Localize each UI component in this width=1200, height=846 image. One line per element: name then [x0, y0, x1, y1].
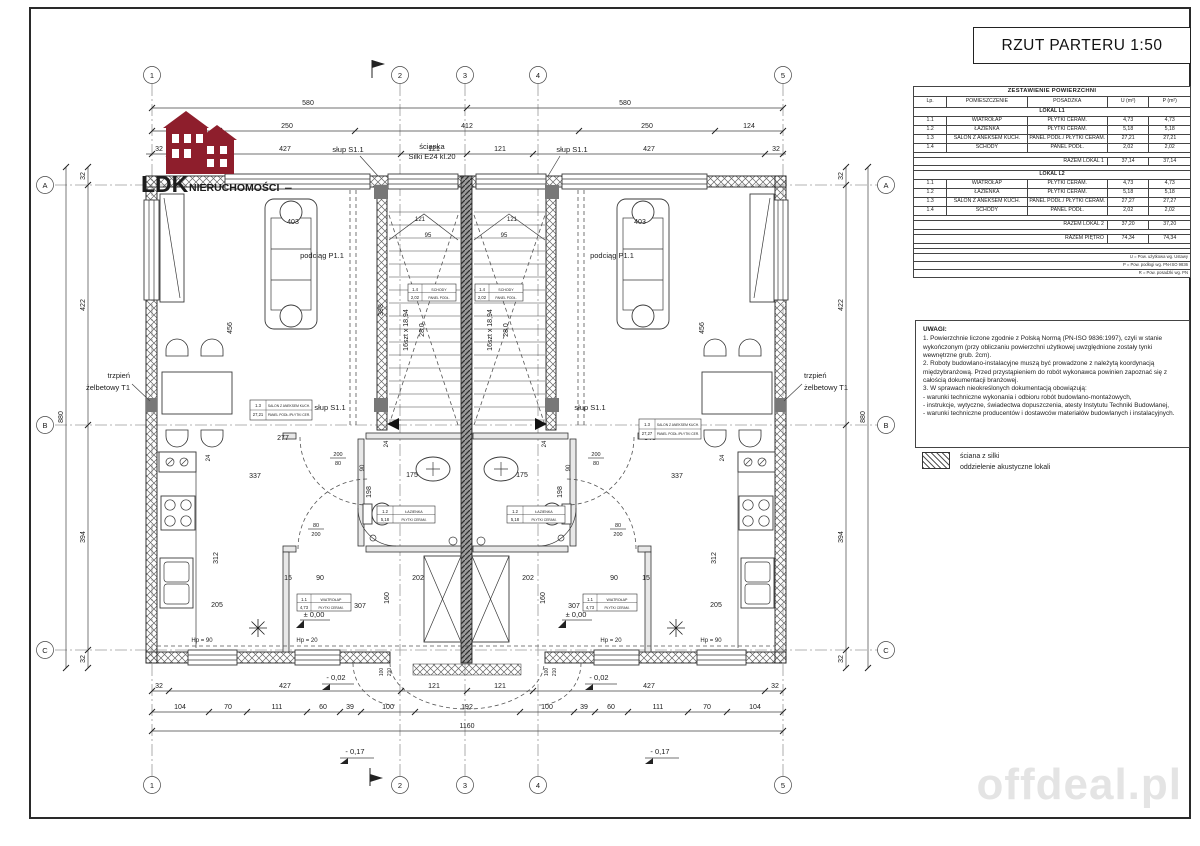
total-value: 37,14: [1107, 157, 1149, 166]
title-block: RZUT PARTERU 1:50: [973, 27, 1191, 64]
dimensions-right: 32 422 394 32 880: [838, 164, 871, 671]
dim: 200: [333, 452, 342, 458]
room-number: 1.3: [255, 403, 261, 408]
room-tag-bath-right: 1.2 ŁAZIENKA 5,18 PŁYTKI CERAM.: [507, 506, 565, 523]
dim: 175: [516, 472, 528, 479]
dim: 198: [366, 486, 373, 498]
dim: 200: [311, 532, 320, 538]
cell: 2,02: [1149, 207, 1191, 216]
grid-row-label: B: [42, 421, 47, 430]
dim: 15: [284, 575, 292, 582]
dim: 32: [80, 655, 87, 663]
dim: 200: [613, 532, 622, 538]
note-item: 1. Powierzchnie liczone zgodnie z Polską…: [923, 335, 1182, 360]
room-floor: PANEL PODŁ./PŁYTKI CER.: [657, 432, 699, 436]
stairs-left: 16szt x 18,94 28,0: [387, 212, 460, 430]
dim: 198: [557, 486, 564, 498]
cell: 1.4: [914, 143, 947, 152]
column-t1: [146, 398, 157, 412]
cell: 5,18: [1149, 125, 1191, 134]
cell: 2,02: [1149, 143, 1191, 152]
room-area: 2,02: [478, 295, 487, 300]
note-item: - instrukcje, wytyczne, świadectwa dopus…: [923, 402, 1182, 410]
dim: 880: [860, 411, 867, 423]
pier-note: trzpień: [804, 371, 827, 380]
dim: 200: [591, 452, 600, 458]
sill-height-note: Hp = 20: [296, 638, 318, 644]
dim: 250: [641, 123, 653, 130]
room-tag-salon-right: 1.3 SALON Z ANEKSEM KUCH. 27,27 PANEL PO…: [639, 419, 701, 439]
room-number: 1.2: [382, 509, 388, 514]
sill-height-note: Hp = 90: [700, 638, 722, 644]
wall-note: ścianka: [419, 142, 445, 151]
sink-icon: [741, 558, 774, 608]
room-floor: PŁYTKI CERAM.: [401, 518, 426, 522]
level-marker: - 0,02: [326, 673, 345, 682]
grid-row-label: A: [883, 181, 888, 190]
grid-col-label: 3: [463, 781, 467, 790]
room-name: ŁAZIENKA: [535, 510, 553, 514]
dim: 70: [224, 704, 232, 711]
col-header: POMIESZCZENIE: [947, 96, 1027, 107]
room-name: SCHODY: [498, 288, 514, 292]
total-value: 37,14: [1149, 157, 1191, 166]
room-floor: PŁYTKI CERAM.: [318, 606, 343, 610]
cell: 1.2: [914, 189, 947, 198]
toilet-icon: [363, 504, 372, 524]
dim: 312: [213, 552, 220, 564]
column-s11: [545, 398, 559, 412]
grid-col-label: 3: [463, 71, 467, 80]
dim: 80: [313, 523, 319, 529]
room-floor: PŁYTKI CERAM.: [604, 606, 629, 610]
dim: 104: [174, 704, 186, 711]
dim: 121: [494, 146, 506, 153]
kitchen-right: [738, 452, 775, 648]
legend-line: oddzielenie akustyczne lokali: [960, 463, 1050, 474]
room-number: 1.1: [301, 597, 307, 602]
room-area: 5,18: [511, 517, 520, 522]
room-area: 4,73: [586, 605, 595, 610]
column-s11: [374, 185, 388, 199]
cell: PANEL PODŁ.: [1027, 143, 1107, 152]
dim: 398: [378, 304, 385, 316]
dim: 580: [302, 100, 314, 107]
dim: 32: [838, 172, 845, 180]
room-tag-salon-left: 1.3 SALON Z ANEKSEM KUCH. 27,21 PANEL PO…: [250, 400, 312, 420]
col-header: U (m²): [1107, 96, 1149, 107]
notes-title: UWAGI:: [923, 326, 1182, 334]
room-tag-bath-left: 1.2 ŁAZIENKA 5,18 PŁYTKI CERAM.: [377, 506, 435, 523]
room-floor: PANEL PODŁ.: [495, 296, 516, 300]
dim: 412: [461, 123, 473, 130]
total-value: 37,20: [1107, 221, 1149, 230]
dim: 121: [494, 683, 506, 690]
grand-total-value: 74,34: [1149, 235, 1191, 244]
dim: 337: [671, 473, 683, 480]
room-area: 2,02: [411, 295, 420, 300]
cell: PŁYTKI CERAM.: [1027, 116, 1107, 125]
grid-row-label: B: [883, 421, 888, 430]
dim: 121: [428, 683, 440, 690]
cell: SCHODY: [947, 143, 1027, 152]
room-number: 1.4: [479, 287, 485, 292]
dim: 192: [461, 704, 473, 711]
hatch-swatch-icon: [922, 452, 950, 469]
column-t1: [775, 398, 786, 412]
col-header: Lp.: [914, 96, 947, 107]
cell: SALON Z ANEKSEM KUCH.: [947, 134, 1027, 143]
company-logo: LDK NIERUCHOMOŚCI –: [133, 106, 303, 198]
table-title: ZESTAWIENIE POWIERZCHNI: [914, 87, 1191, 97]
room-number: 1.3: [644, 422, 650, 427]
dim: 160: [384, 592, 391, 604]
section-header: LOKAL L1: [914, 107, 1191, 116]
room-floor: PANEL PODŁ.: [428, 296, 449, 300]
dim: 39: [580, 704, 588, 711]
level-marker: ± 0,00: [304, 610, 325, 619]
room-floor: PANEL PODŁ./PŁYTKI CER.: [268, 413, 310, 417]
dim: 121: [415, 217, 426, 223]
dim: 70: [703, 704, 711, 711]
dim: 100: [541, 704, 553, 711]
column-s11: [545, 185, 559, 199]
room-area: 5,18: [381, 517, 390, 522]
cell: 1.3: [914, 198, 947, 207]
room-name: SALON Z ANEKSEM KUCH.: [657, 423, 699, 427]
cell: PANEL PODŁ.: [1027, 207, 1107, 216]
dim: 90: [360, 464, 366, 471]
dim: 32: [155, 683, 163, 690]
dim: 312: [711, 552, 718, 564]
cell: ŁAZIENKA: [947, 189, 1027, 198]
dining-right: [702, 339, 772, 447]
dim: 80: [615, 523, 621, 529]
legend: ściana z silki oddzielenie akustyczne lo…: [922, 452, 1050, 473]
table-footnote: U = Pow. użytkowa wg. Ustawy: [914, 254, 1191, 262]
dim: 80: [593, 461, 599, 467]
room-floor: PŁYTKI CERAM.: [531, 518, 556, 522]
sink-icon: [160, 558, 193, 608]
dim: 403: [287, 219, 299, 226]
beam-note: podciąg P1.1: [590, 251, 634, 260]
cell: 1.1: [914, 116, 947, 125]
room-tag-hall-right: 1.1 WIATROŁAP 4,73 PŁYTKI CERAM.: [583, 594, 637, 611]
dim: 90: [316, 575, 324, 582]
wall-note: Silki E24 kl.20: [408, 152, 455, 161]
grid-col-label: 5: [781, 781, 785, 790]
cell: SALON Z ANEKSEM KUCH.: [947, 198, 1027, 207]
dim: 60: [319, 704, 327, 711]
grid-col-label: 4: [536, 781, 540, 790]
room-number: 1.1: [587, 597, 593, 602]
notes-box: UWAGI: 1. Powierzchnie liczone zgodnie z…: [915, 320, 1190, 448]
cell: PŁYTKI CERAM.: [1027, 125, 1107, 134]
dim: 456: [699, 322, 706, 334]
dim: 32: [771, 683, 779, 690]
grand-total-value: 74,34: [1107, 235, 1149, 244]
grid-col-label: 2: [398, 781, 402, 790]
cell: SCHODY: [947, 207, 1027, 216]
cell: 4,73: [1107, 116, 1149, 125]
cell: 1.2: [914, 125, 947, 134]
room-tag-hall-left: 1.1 WIATROŁAP 4,73 PŁYTKI CERAM.: [297, 594, 351, 611]
dim: 24: [720, 454, 726, 461]
room-name: SALON Z ANEKSEM KUCH.: [268, 404, 310, 408]
pier-note: żelbetowy T1: [804, 383, 848, 392]
dim: 60: [607, 704, 615, 711]
dim: 32: [80, 172, 87, 180]
dim: 90: [566, 464, 572, 471]
legend-line: ściana z silki: [960, 452, 1050, 463]
dim: 427: [643, 146, 655, 153]
dim: 111: [272, 704, 283, 711]
dim: 422: [838, 299, 845, 311]
cell: 5,18: [1149, 189, 1191, 198]
dim: 210: [387, 668, 393, 677]
dim: 90: [610, 575, 618, 582]
cell: 1.3: [914, 134, 947, 143]
note-item: - warunki techniczne producentów i dosta…: [923, 410, 1182, 418]
watermark: offdeal.pl: [930, 760, 1182, 810]
level-marker: - 0,17: [650, 747, 669, 756]
cell: 4,73: [1149, 180, 1191, 189]
dim: 80: [335, 461, 341, 467]
cell: PŁYTKI CERAM.: [1027, 180, 1107, 189]
dim: 456: [227, 322, 234, 334]
drawing-title: RZUT PARTERU 1:50: [1002, 37, 1163, 55]
cell: PANEL PODŁ./ PŁYTKI CERAM.: [1027, 134, 1107, 143]
cell: 4,73: [1107, 180, 1149, 189]
dim: 39: [346, 704, 354, 711]
level-marker: ± 0,00: [566, 610, 587, 619]
dim: 394: [838, 531, 845, 543]
dim: 277: [277, 435, 289, 442]
column-note: słup S1.1: [332, 145, 363, 154]
dim: 205: [211, 602, 223, 609]
column-s11: [374, 398, 388, 412]
area-summary-table: ZESTAWIENIE POWIERZCHNI Lp. POMIESZCZENI…: [913, 86, 1191, 278]
room-name: SCHODY: [431, 288, 447, 292]
level-marker: - 0,17: [345, 747, 364, 756]
cell: PŁYTKI CERAM.: [1027, 189, 1107, 198]
cell: 5,18: [1107, 125, 1149, 134]
dim: 100: [382, 704, 394, 711]
cell: 27,21: [1107, 134, 1149, 143]
cell: WIATROŁAP: [947, 116, 1027, 125]
section-header: LOKAL L2: [914, 171, 1191, 180]
dim: 100: [379, 668, 385, 677]
grid-col-label: 4: [536, 71, 540, 80]
dim: 202: [412, 575, 424, 582]
dim: 124: [743, 123, 755, 130]
room-name: WIATROŁAP: [607, 598, 629, 602]
column-note: słup S1.1: [556, 145, 587, 154]
dim: 100: [544, 668, 550, 677]
cell: 1.1: [914, 180, 947, 189]
dim: 202: [522, 575, 534, 582]
dim: 205: [710, 602, 722, 609]
dim: 111: [653, 704, 664, 711]
dim: 210: [552, 668, 558, 677]
room-tag-stairs-right: 1.4 SCHODY 2,02 PANEL PODŁ.: [475, 284, 523, 301]
logo-brand-text: LDK: [141, 171, 189, 197]
dim: 307: [354, 603, 366, 610]
dim: 427: [279, 683, 291, 690]
dim: 337: [249, 473, 261, 480]
column-note: słup S1.1: [574, 403, 605, 412]
column-note: słup S1.1: [314, 403, 345, 412]
grid-col-label: 1: [150, 781, 154, 790]
dim: 15: [642, 575, 650, 582]
note-item: 3. W sprawach nieokreślonych dokumentacj…: [923, 385, 1182, 393]
room-number: 1.4: [412, 287, 418, 292]
stair-tread-label: 28,0: [503, 323, 510, 337]
note-item: - warunki techniczne wykonania i odbioru…: [923, 394, 1182, 402]
cell: 2,02: [1107, 207, 1149, 216]
beam-note: podciąg P1.1: [300, 251, 344, 260]
stair-steps-label: 16szt x 18,94: [403, 309, 410, 351]
grid-row-label: C: [42, 646, 48, 655]
grid-col-label: 2: [398, 71, 402, 80]
cell: 27,27: [1107, 198, 1149, 207]
total-label: RAZEM LOKAL 2: [914, 221, 1108, 230]
dim: 427: [643, 683, 655, 690]
cell: 1.4: [914, 207, 947, 216]
dim: 1160: [459, 723, 474, 730]
grid-col-label: 1: [150, 71, 154, 80]
dim: 422: [80, 299, 87, 311]
sill-height-note: Hp = 90: [191, 638, 213, 644]
level-marker: - 0,02: [589, 673, 608, 682]
dim: 104: [749, 704, 761, 711]
cell: ŁAZIENKA: [947, 125, 1027, 134]
dim: 160: [540, 592, 547, 604]
dimensions-left: 32 422 394 32 880: [58, 164, 91, 671]
col-header: P (m²): [1149, 96, 1191, 107]
total-value: 37,20: [1149, 221, 1191, 230]
total-label: RAZEM LOKAL 1: [914, 157, 1108, 166]
pier-note: trzpień: [107, 371, 130, 380]
dim: 403: [634, 219, 646, 226]
stairs-right: 16szt x 18,94 28,0: [474, 212, 547, 430]
table-footnote: R = Pow. posadzki wg. PN: [914, 269, 1191, 277]
stair-tread-label: 28,0: [419, 323, 426, 337]
kitchen-left: [157, 452, 196, 648]
drawing-sheet: 1 2 3 4 5 1 2 3 4 5 A B C A B C: [0, 0, 1200, 846]
room-area: 27,21: [253, 412, 264, 417]
dim: 121: [507, 217, 518, 223]
stair-steps-label: 16szt x 18,94: [487, 309, 494, 351]
dim: 580: [619, 100, 631, 107]
dim: 24: [384, 440, 390, 447]
dim: 24: [206, 454, 212, 461]
room-tag-stairs-left: 1.4 SCHODY 2,02 PANEL PODŁ.: [408, 284, 456, 301]
cell: 27,21: [1149, 134, 1191, 143]
bathroom-left: [358, 457, 450, 546]
dim: 32: [838, 655, 845, 663]
note-item: 2. Roboty budowlano-instalacyjne muszą b…: [923, 360, 1182, 385]
acoustic-party-wall: [461, 176, 472, 663]
dim: 32: [772, 146, 780, 153]
room-name: WIATROŁAP: [321, 598, 343, 602]
cell: 2,02: [1107, 143, 1149, 152]
dim: 880: [58, 411, 65, 423]
cell: WIATROŁAP: [947, 180, 1027, 189]
room-area: 27,27: [642, 431, 653, 436]
col-header: POSADZKA: [1027, 96, 1107, 107]
grid-row-label: A: [42, 181, 47, 190]
cell: 27,27: [1149, 198, 1191, 207]
dim: 95: [501, 233, 508, 239]
logo-dash: –: [285, 180, 292, 194]
dim: 24: [542, 440, 548, 447]
room-name: ŁAZIENKA: [405, 510, 423, 514]
room-number: 1.2: [512, 509, 518, 514]
sill-height-note: Hp = 20: [600, 638, 622, 644]
dim: 95: [425, 233, 432, 239]
grid-row-label: C: [883, 646, 889, 655]
logo-subtitle-text: NIERUCHOMOŚCI: [189, 181, 280, 194]
bathroom-right: [484, 457, 576, 546]
dim: 307: [568, 603, 580, 610]
cell: PANEL PODŁ./ PŁYTKI CERAM.: [1027, 198, 1107, 207]
pier-note: żelbetowy T1: [86, 383, 130, 392]
grid-col-label: 5: [781, 71, 785, 80]
dining-left: [162, 339, 232, 447]
dim: 394: [80, 531, 87, 543]
dim: 175: [406, 472, 418, 479]
cell: 4,73: [1149, 116, 1191, 125]
cell: 5,18: [1107, 189, 1149, 198]
grand-total-label: RAZEM PIĘTRO: [914, 235, 1108, 244]
table-footnote: P = Pow. podłogi wg. PN-ISO 9836: [914, 262, 1191, 270]
room-area: 4,73: [300, 605, 309, 610]
dimensions-bottom: 32 427 121 121 427 32 104 70 111 60 39 1…: [149, 683, 786, 734]
